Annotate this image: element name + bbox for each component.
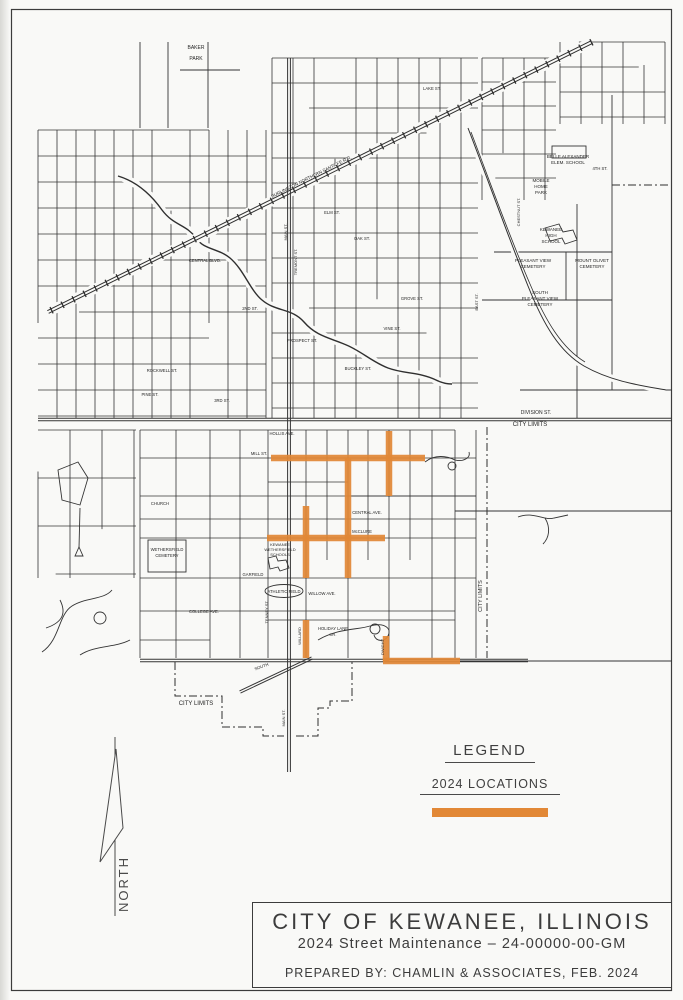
map-label: MAIN ST. xyxy=(283,224,288,241)
map-label: COLLEGE AVE. xyxy=(189,609,219,614)
map-label: TREMONT ST. xyxy=(293,249,298,276)
map-label: WETHERSFIELD xyxy=(151,547,184,552)
map-label: CHESTNUT ST. xyxy=(516,198,521,227)
map-label: EAST ST. xyxy=(474,293,479,310)
map-label: PLEASANT VIEW xyxy=(515,258,552,263)
legend: LEGEND 2024 LOCATIONS xyxy=(415,742,565,817)
map-label: PARK xyxy=(535,190,547,195)
map-label: ROCKWELL ST. xyxy=(147,368,178,373)
highlight-2024-segments xyxy=(267,431,460,661)
map-sheet: BAKERPARKCITY LIMITSDIVISION ST.CITY LIM… xyxy=(0,0,683,1000)
map-label: DR. xyxy=(330,632,337,637)
map-label: BELLE ALEXANDER xyxy=(547,154,590,159)
map-label: ATHLETIC FIELD xyxy=(268,589,301,594)
map-label: CEMETERY xyxy=(580,264,605,269)
map-label: MILL ST. xyxy=(251,451,267,456)
street-map: BAKERPARKCITY LIMITSDIVISION ST.CITY LIM… xyxy=(0,0,683,1000)
map-label: TENNEY ST. xyxy=(264,600,269,623)
north-arrow-icon xyxy=(100,749,123,862)
map-label: HOLLIS AVE. xyxy=(269,431,294,436)
north-indicator: NORTH xyxy=(100,737,131,916)
map-label: WILLOW AVE. xyxy=(308,591,335,596)
map-label: CITY LIMITS xyxy=(513,422,548,428)
prepared-by: PREPARED BY: CHAMLIN & ASSOCIATES, FEB. … xyxy=(253,966,671,980)
map-label: CENTRAL AVE. xyxy=(352,510,382,515)
map-label: DIVISION ST. xyxy=(521,410,552,416)
map-title: CITY OF KEWANEE, ILLINOIS xyxy=(253,909,671,935)
map-label: SOUTH xyxy=(254,662,269,672)
map-label: SCHOOLS xyxy=(270,552,290,557)
map-label: CEMETERY xyxy=(528,302,553,307)
legend-item-label: 2024 LOCATIONS xyxy=(420,777,561,795)
map-label: MOUNT OLIVET xyxy=(575,258,609,263)
legend-title: LEGEND xyxy=(445,742,535,763)
map-label: HOLIDAY LANE xyxy=(318,626,348,631)
title-block: CITY OF KEWANEE, ILLINOIS 2024 Street Ma… xyxy=(252,902,672,988)
map-label: CITY LIMITS xyxy=(478,580,484,612)
map-label: 4TH ST. xyxy=(592,166,607,171)
map-label: GARFIELD xyxy=(243,572,264,577)
map-label: KEWANEE xyxy=(540,227,562,232)
map-label: SOUTH xyxy=(532,290,548,295)
map-label: BUCKLEY ST. xyxy=(345,366,372,371)
map-subtitle: 2024 Street Maintenance – 24-00000-00-GM xyxy=(253,936,671,952)
map-label: PROSPECT ST. xyxy=(287,338,317,343)
map-label: PLEASANT VIEW xyxy=(522,296,559,301)
map-label: PINE ST. xyxy=(142,392,159,397)
north-label: NORTH xyxy=(116,856,131,912)
map-label: DWIGHT xyxy=(380,638,385,655)
map-label: BURLINGTON NORTHERN SANTA FE R.R. xyxy=(270,155,352,199)
map-label: 2ND ST. xyxy=(242,306,258,311)
map-label: LAKE ST. xyxy=(423,86,441,91)
map-label: CENTRAL BLVD. xyxy=(189,258,221,263)
map-label: ELM ST. xyxy=(324,210,340,215)
map-label: McCLURE xyxy=(352,529,372,534)
map-label: HIGH xyxy=(545,233,556,238)
legend-2024-swatch xyxy=(432,808,548,817)
map-label: SCHOOL xyxy=(541,239,561,244)
map-label: MOBILE xyxy=(532,178,549,183)
map-label: CHURCH xyxy=(151,501,169,506)
map-label: CEMETERY xyxy=(155,553,178,558)
map-label: MAIN ST. xyxy=(281,710,286,727)
map-label: BAKER xyxy=(188,45,205,51)
map-label: 3RD ST. xyxy=(214,398,230,403)
map-label: HOME xyxy=(534,184,548,189)
map-label: ELEM. SCHOOL xyxy=(551,160,585,165)
map-label: GROVE ST. xyxy=(401,296,423,301)
map-label: CITY LIMITS xyxy=(179,701,214,707)
map-label: PARK xyxy=(189,56,203,62)
map-label: OAK ST. xyxy=(354,236,370,241)
map-label: VINE ST. xyxy=(384,326,401,331)
map-label: CEMETERY xyxy=(521,264,546,269)
map-label: WILLARD xyxy=(297,627,302,645)
